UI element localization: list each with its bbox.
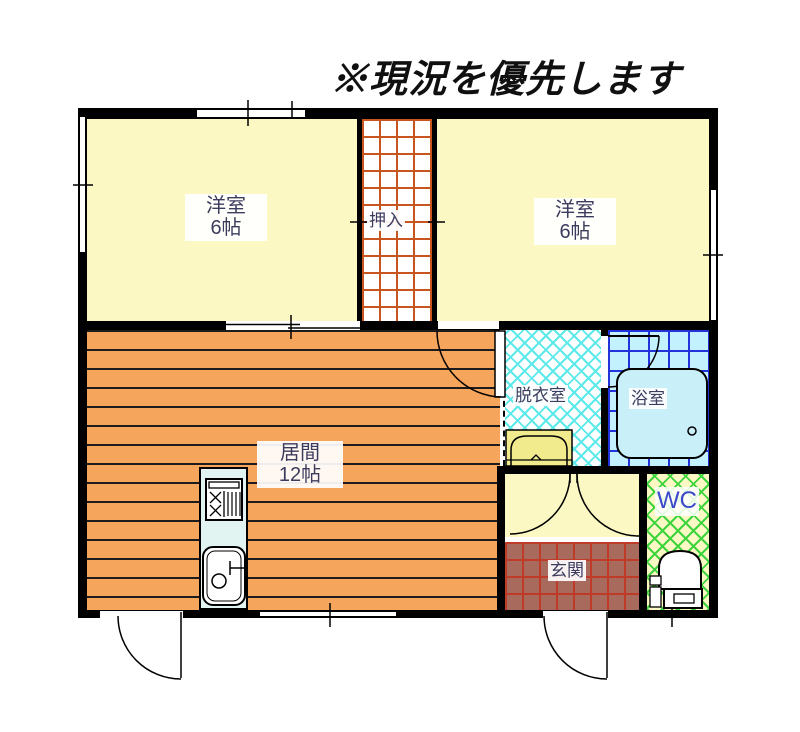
door-gap-living-exterior — [100, 610, 183, 618]
bedroom-right-label: 洋室 6帖 — [534, 198, 616, 245]
bedroom-left-name: 洋室 — [187, 195, 265, 217]
bedroom-right-size: 6帖 — [536, 221, 614, 243]
living-label: 居間 12帖 — [257, 441, 343, 488]
wc-label: WC — [655, 487, 699, 516]
wall-top — [78, 108, 718, 119]
dressing-open-boundary — [503, 332, 505, 466]
door-gap-entrance — [543, 610, 608, 618]
window-right — [709, 190, 718, 320]
entrance-label: 玄関 — [548, 560, 586, 581]
sliding-opening-bedroom-left — [226, 321, 360, 330]
dressing-label: 脱衣室 — [513, 385, 568, 406]
kitchen-counter — [199, 467, 248, 610]
closet-wall-left — [357, 119, 362, 321]
entrance-hall-floor — [505, 474, 639, 540]
wall-genkan-wc — [639, 474, 647, 610]
door-gap-bath — [601, 336, 608, 388]
door-arc-living-exterior — [118, 616, 181, 679]
wall-right — [709, 108, 718, 618]
living-size: 12帖 — [259, 464, 341, 486]
door-gap-bedroom-right — [438, 321, 499, 330]
wall-living-hall — [497, 466, 505, 610]
floorplan-page: ※現況を優先します — [0, 0, 800, 732]
bedroom-left-label: 洋室 6帖 — [185, 194, 267, 241]
door-arc-entrance — [544, 616, 607, 679]
closet-wall-right — [432, 119, 437, 321]
bedroom-right-name: 洋室 — [536, 199, 614, 221]
window-bottom — [260, 610, 396, 618]
living-name: 居間 — [259, 442, 341, 464]
wall-below-dressing — [497, 466, 718, 474]
window-left — [78, 117, 87, 252]
wall-middle — [78, 321, 718, 330]
bath-label: 浴室 — [629, 388, 667, 409]
closet-label: 押入 — [367, 210, 405, 231]
window-top — [197, 108, 305, 119]
bedroom-left-size: 6帖 — [187, 217, 265, 239]
page-title: ※現況を優先します — [330, 48, 770, 103]
